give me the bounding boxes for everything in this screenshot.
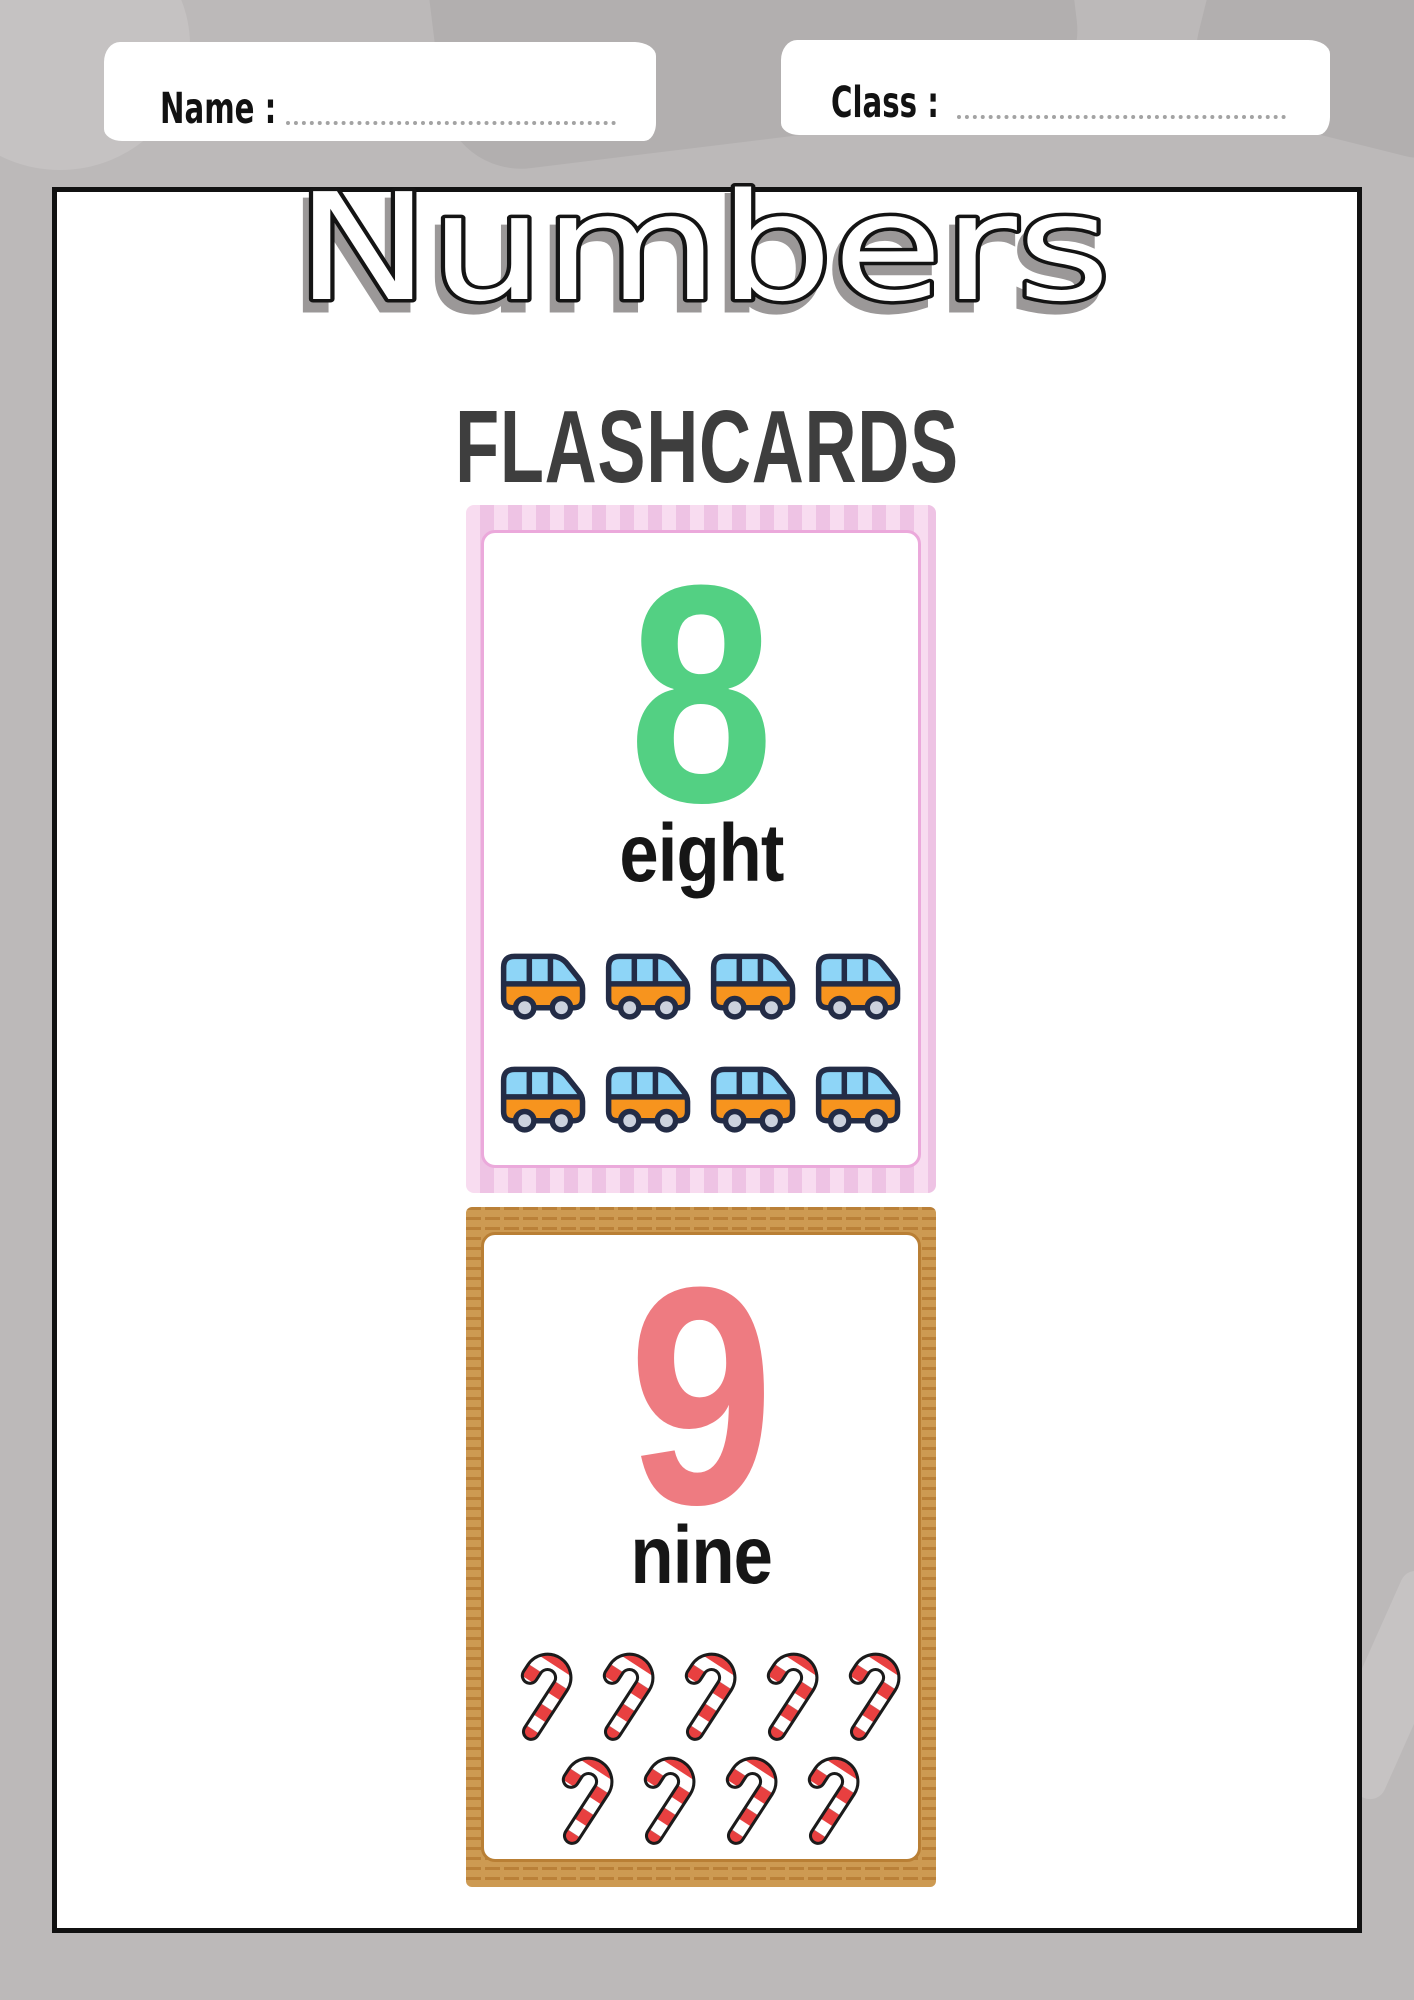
bus-icon — [813, 949, 905, 1027]
flashcard-nine: 9 nine — [466, 1207, 936, 1887]
flashcard-number: 8 — [629, 579, 774, 809]
bus-icon — [708, 1062, 800, 1140]
title-numbers: Numbers Numbers — [253, 185, 1153, 355]
class-write-line[interactable] — [957, 115, 1286, 119]
candy-cane-icon — [502, 1641, 572, 1743]
candy-cane-icon — [625, 1745, 695, 1847]
name-label: Name : — [160, 88, 272, 131]
name-write-line[interactable] — [286, 121, 616, 125]
bus-icon — [498, 949, 590, 1027]
flashcard-word: nine — [630, 1511, 772, 1601]
flashcard-word: eight — [619, 809, 783, 899]
worksheet-canvas: Name : Class : Numbers Numbers FLASHCARD… — [0, 0, 1414, 2000]
bus-icon — [498, 1062, 590, 1140]
bus-icon — [603, 1062, 695, 1140]
candy-cane-icon — [748, 1641, 818, 1743]
bus-icon — [603, 949, 695, 1027]
bus-count-grid — [484, 949, 918, 1140]
flashcard-eight-inner: 8 eight — [481, 530, 921, 1168]
candy-cane-icon — [666, 1641, 736, 1743]
flashcard-eight: 8 eight — [466, 505, 936, 1193]
bus-icon — [708, 949, 800, 1027]
candy-cane-icon — [543, 1745, 613, 1847]
subtitle-flashcards: FLASHCARDS — [249, 395, 1166, 498]
candy-cane-icon — [789, 1745, 859, 1847]
name-box: Name : — [104, 42, 656, 141]
title-main-text: Numbers — [296, 162, 1111, 334]
bus-icon — [813, 1062, 905, 1140]
flashcard-number: 9 — [629, 1281, 774, 1511]
class-label: Class : — [831, 82, 943, 125]
candy-cane-count-grid — [484, 1641, 918, 1847]
candy-cane-icon — [707, 1745, 777, 1847]
flashcard-nine-inner: 9 nine — [481, 1232, 921, 1862]
candy-cane-icon — [830, 1641, 900, 1743]
class-box: Class : — [781, 40, 1330, 135]
candy-cane-icon — [584, 1641, 654, 1743]
